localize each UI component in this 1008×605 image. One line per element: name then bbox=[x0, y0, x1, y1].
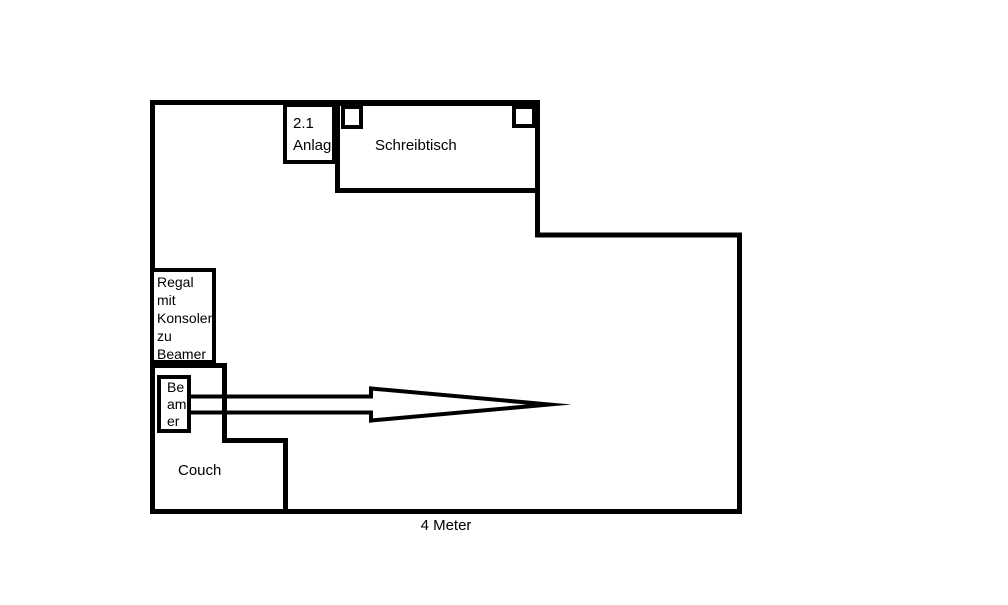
shelf-label-line5: Beamer bbox=[157, 345, 212, 363]
shelf-label-line1: Regal bbox=[157, 273, 212, 291]
beamer-label-line1: Be bbox=[167, 379, 187, 396]
floor-plan: 2.1 Anlage Schreibtisch Regal mit Konsol… bbox=[0, 0, 1008, 605]
desk-corner-square-left bbox=[341, 105, 363, 129]
dimension-label: 4 Meter bbox=[150, 517, 742, 534]
beamer-label-line3: er bbox=[167, 413, 187, 430]
audio-system-label-line2: Anlage bbox=[293, 135, 332, 157]
projection-arrow bbox=[190, 389, 549, 421]
desk-corner-square-right bbox=[512, 105, 536, 128]
audio-system-box: 2.1 Anlage bbox=[283, 103, 336, 164]
shelf-label-line3: Konsolen bbox=[157, 309, 212, 327]
shelf-box: Regal mit Konsolen zu Beamer bbox=[150, 268, 216, 364]
desk-label: Schreibtisch bbox=[375, 137, 457, 154]
audio-system-label-line1: 2.1 bbox=[293, 113, 332, 135]
couch-label: Couch bbox=[178, 462, 221, 479]
shelf-label-line2: mit bbox=[157, 291, 212, 309]
beamer-label-line2: am bbox=[167, 396, 187, 413]
shelf-label-line4: zu bbox=[157, 327, 212, 345]
beamer-box: Be am er bbox=[157, 375, 191, 433]
desk-box: Schreibtisch bbox=[335, 100, 540, 193]
